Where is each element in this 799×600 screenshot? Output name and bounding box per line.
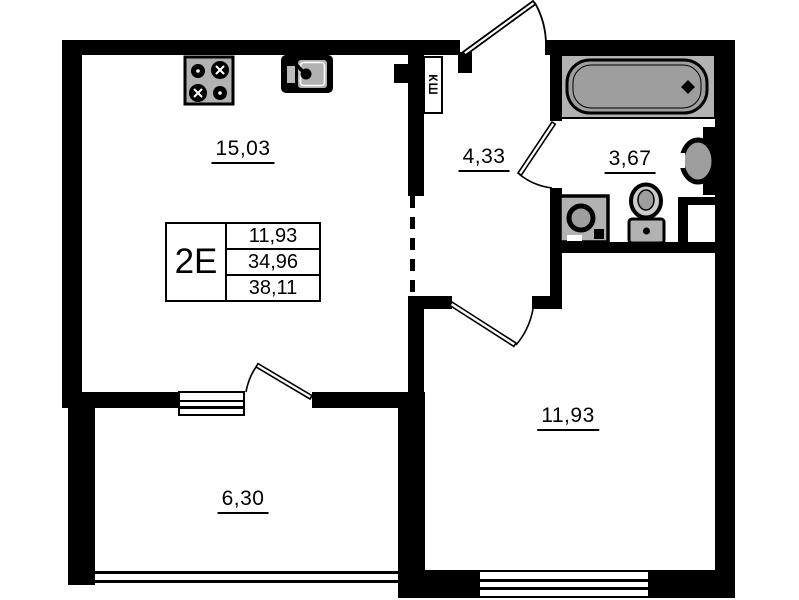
- room-label-kitchen-living: 15,03: [211, 137, 274, 164]
- unit-area-row-total: 38,11: [227, 276, 319, 300]
- bathroom-sink-icon: [677, 127, 715, 195]
- bedroom-door-arc: [516, 309, 533, 345]
- entrance-door-leaf: [463, 1, 535, 55]
- room-label-bathroom: 3,67: [605, 147, 656, 174]
- wall-left: [62, 40, 82, 408]
- bathroom-door-arc: [519, 174, 552, 188]
- kitchen-closet-label: КШ: [426, 74, 440, 95]
- entrance-door-arc: [535, 3, 546, 44]
- bedroom-door: [450, 302, 533, 346]
- window-pane-line: [180, 406, 243, 409]
- bathroom-door-leaf: [518, 122, 555, 175]
- bathroom-door: [518, 122, 555, 188]
- balcony-door-arc: [246, 367, 256, 392]
- wall-entrance-jamb: [458, 52, 472, 73]
- balcony-window: [178, 391, 245, 416]
- window-pane-line: [180, 400, 243, 403]
- balcony-glazing: [95, 571, 398, 583]
- room-label-hallway: 4,33: [459, 145, 510, 172]
- wall-kitchen-hall-lower: [408, 296, 424, 396]
- wall-balcony-top-a: [70, 392, 178, 408]
- kitchen-sink-icon: [281, 55, 333, 93]
- wall-balcony-left: [68, 393, 95, 585]
- wall-bathroom-bottom: [550, 242, 715, 253]
- balcony-door-leaf: [256, 364, 312, 399]
- open-boundary-dashed-line: [410, 196, 415, 296]
- wall-bedroom-door-jamb-left: [408, 296, 452, 309]
- room-label-bedroom: 11,93: [537, 404, 599, 431]
- unit-area-row-living: 11,93: [227, 224, 319, 250]
- wall-balcony-divider: [398, 393, 425, 598]
- wall-shaft-left: [678, 197, 688, 242]
- bedroom-window: [480, 572, 648, 596]
- wall-balcony-top-b: [312, 392, 425, 408]
- wall-pilaster: [394, 64, 409, 83]
- window-pane-line: [480, 579, 648, 582]
- wall-hall-bath-upper: [550, 55, 562, 121]
- floor-plan: КШ: [0, 0, 799, 600]
- wall-top-right: [545, 40, 735, 55]
- unit-info-table: 2E 11,93 34,96 38,11: [165, 222, 321, 302]
- balcony-door: [246, 364, 312, 399]
- unit-area-rows: 11,93 34,96 38,11: [227, 224, 319, 300]
- room-label-balcony: 6,30: [218, 487, 269, 514]
- unit-area-row-main: 34,96: [227, 250, 319, 276]
- wall-kitchen-hall-upper: [408, 55, 424, 196]
- unit-type-label: 2E: [167, 224, 227, 300]
- toilet-icon: [629, 185, 664, 244]
- wall-top-left: [62, 40, 460, 55]
- wall-right: [715, 40, 735, 598]
- washing-machine-icon: [560, 196, 608, 242]
- bedroom-door-leaf: [450, 302, 516, 346]
- stove-icon: [185, 57, 233, 104]
- bathtub-icon: [561, 55, 715, 118]
- bathtub-drain: [681, 80, 695, 94]
- entrance-door: [463, 1, 546, 55]
- kitchen-closet-box: КШ: [423, 56, 443, 114]
- window-pane-line: [480, 587, 648, 590]
